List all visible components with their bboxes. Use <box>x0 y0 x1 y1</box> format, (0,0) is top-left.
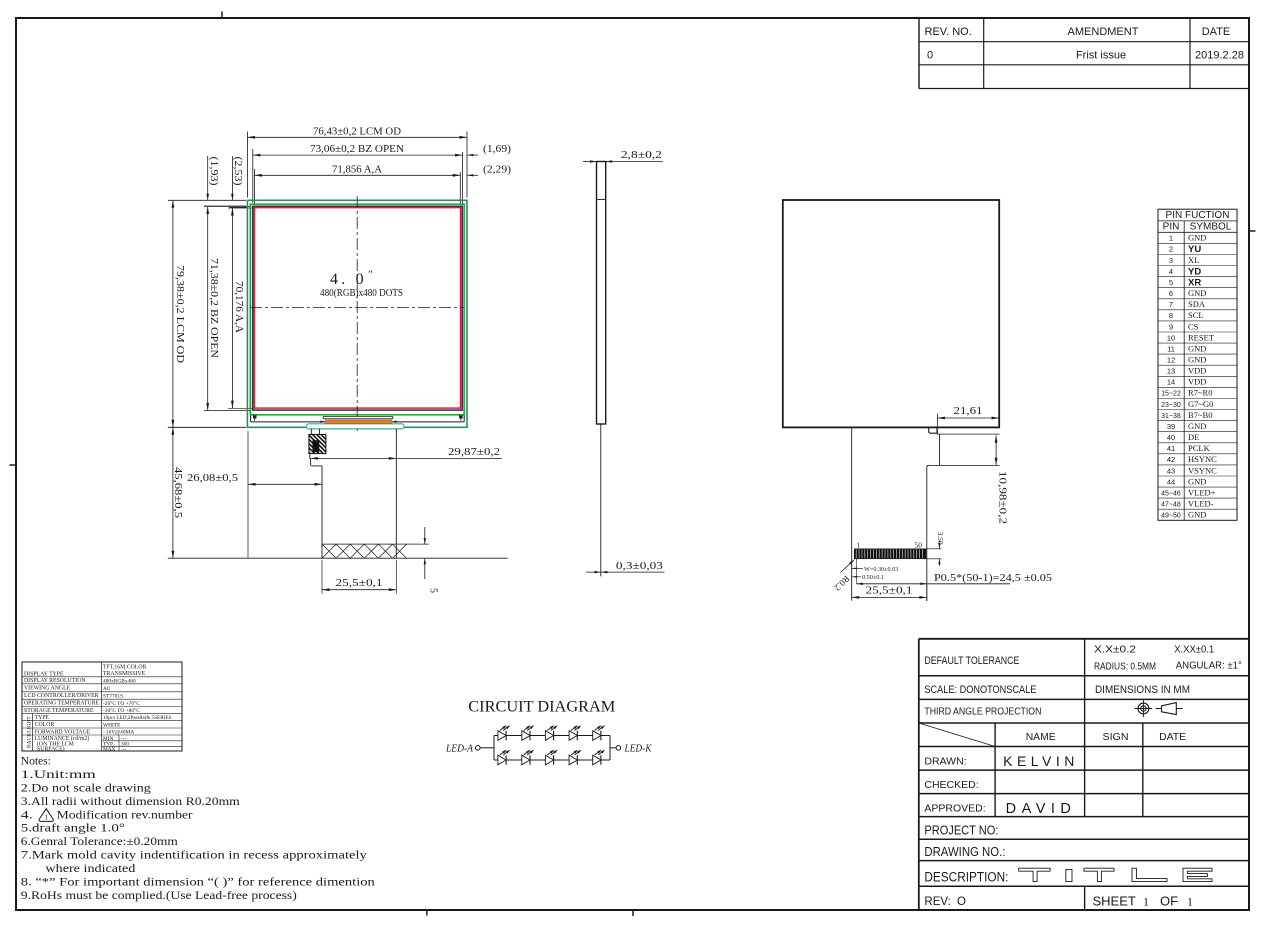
svg-text:P0.5*(50-1)=24,5 ±0.05: P0.5*(50-1)=24,5 ±0.05 <box>934 573 1052 584</box>
svg-text:2.Do not scale drawing: 2.Do not scale drawing <box>21 780 151 794</box>
svg-text:3: 3 <box>1169 256 1173 265</box>
svg-text:7.Mark mold cavity indentifica: 7.Mark mold cavity indentification in re… <box>21 848 367 862</box>
svg-text:10: 10 <box>1167 333 1175 342</box>
svg-text:73,06±0,2 BZ OPEN: 73,06±0,2 BZ OPEN <box>310 143 404 155</box>
svg-text:LED-A: LED-A <box>445 743 473 755</box>
svg-text:1.Unit:mm: 1.Unit:mm <box>21 767 97 781</box>
svg-text:31~38: 31~38 <box>1161 413 1181 420</box>
svg-text:4: 4 <box>1169 267 1173 276</box>
svg-text:4.: 4. <box>21 807 33 821</box>
svg-text:SCALE: DONOTONSCALE: SCALE: DONOTONSCALE <box>924 684 1036 696</box>
svg-text:MAX: MAX <box>103 746 116 752</box>
svg-text:5: 5 <box>428 588 439 593</box>
svg-text:CHECKED:: CHECKED: <box>924 779 978 791</box>
svg-text:VLED+: VLED+ <box>1188 487 1216 497</box>
svg-text:VDD: VDD <box>1188 377 1206 387</box>
svg-text:OPERATING TEMPERATURE: OPERATING TEMPERATURE <box>24 701 100 707</box>
svg-text:10,98±0,2: 10,98±0,2 <box>997 471 1009 524</box>
svg-text:1: 1 <box>1143 894 1149 908</box>
svg-text:COLOR: COLOR <box>35 722 55 728</box>
svg-text:8. “*” For important dimension: 8. “*” For important dimension “( )” for… <box>21 875 375 889</box>
svg-text:THIRD ANGLE PROJECTION: THIRD ANGLE PROJECTION <box>924 706 1041 718</box>
svg-text:DISPLAY RESOLUTION: DISPLAY RESOLUTION <box>24 678 86 684</box>
svg-text:9: 9 <box>1169 322 1173 331</box>
svg-text:DATE: DATE <box>1202 26 1231 38</box>
svg-text:~16V@40MA: ~16V@40MA <box>103 730 134 736</box>
svg-text:3.50: 3.50 <box>936 532 945 545</box>
svg-text:HSYNC: HSYNC <box>1188 454 1217 464</box>
svg-text:Notes:: Notes: <box>21 754 51 768</box>
svg-text:(2,53): (2,53) <box>232 157 244 186</box>
svg-text:0.50±0.1: 0.50±0.1 <box>862 574 884 581</box>
svg-text:ANGULAR: ±1°: ANGULAR: ±1° <box>1176 660 1242 672</box>
svg-text:40: 40 <box>1167 433 1175 442</box>
svg-text:VDD: VDD <box>1188 366 1206 376</box>
svg-text:CIRCUIT DIAGRAM: CIRCUIT DIAGRAM <box>468 699 615 716</box>
svg-text:KELVIN: KELVIN <box>1003 753 1079 769</box>
svg-text:Frist issue: Frist issue <box>1076 50 1126 62</box>
svg-text:(2,29): (2,29) <box>483 163 511 175</box>
svg-text:″: ″ <box>368 267 373 281</box>
svg-text:5.draft angle 1.0°: 5.draft angle 1.0° <box>21 821 125 835</box>
svg-text:13: 13 <box>1167 367 1175 376</box>
svg-text:25,5±0,1: 25,5±0,1 <box>866 585 913 597</box>
svg-text:PCLK: PCLK <box>1188 443 1211 453</box>
svg-text:2019.2.28: 2019.2.28 <box>1195 50 1244 62</box>
svg-text:DESCRIPTION:: DESCRIPTION: <box>924 869 1008 884</box>
svg-text:ST7701S: ST7701S <box>103 694 123 700</box>
svg-text:5: 5 <box>1169 278 1173 287</box>
svg-text:DEFAULT TOLERANCE: DEFAULT TOLERANCE <box>924 655 1019 667</box>
svg-text:APPROVED:: APPROVED: <box>924 803 985 815</box>
svg-text:GND: GND <box>1188 288 1206 298</box>
svg-text:GND: GND <box>1188 510 1206 520</box>
svg-text:W=0.30±0.03: W=0.30±0.03 <box>864 566 898 573</box>
svg-text:0: 0 <box>927 50 933 62</box>
svg-text:BACKLIGHT: BACKLIGHT <box>27 716 33 748</box>
svg-text:RADIUS: 0.5MM: RADIUS: 0.5MM <box>1094 661 1156 673</box>
svg-text:42: 42 <box>1167 455 1175 464</box>
svg-text:STORAGE TEMPERATURE: STORAGE TEMPERATURE <box>24 708 94 714</box>
svg-text:8: 8 <box>1169 311 1173 320</box>
svg-text:DRAWN:: DRAWN: <box>924 756 966 768</box>
svg-text:-30°C TO +80°C: -30°C TO +80°C <box>103 707 140 714</box>
svg-text:44: 44 <box>1167 477 1175 486</box>
svg-text:49~50: 49~50 <box>1161 513 1181 520</box>
svg-text:VLED-: VLED- <box>1188 499 1214 509</box>
svg-text:DIMENSIONS IN MM: DIMENSIONS IN MM <box>1095 684 1190 696</box>
svg-text:PROJECT NO:: PROJECT NO: <box>924 823 998 838</box>
svg-text:SYMBOL: SYMBOL <box>1190 222 1232 233</box>
svg-text:47~48: 47~48 <box>1161 502 1181 509</box>
svg-text:-20°C TO +70°C: -20°C TO +70°C <box>103 700 140 707</box>
svg-text:SCL: SCL <box>1188 310 1204 320</box>
svg-text:25,5±0,1: 25,5±0,1 <box>336 577 383 589</box>
svg-text:XR: XR <box>1188 277 1201 288</box>
svg-text:70,176 A,A: 70,176 A,A <box>233 281 245 333</box>
svg-text:All: All <box>103 686 110 692</box>
svg-text:480(RGB)x480 DOTS: 480(RGB)x480 DOTS <box>320 287 403 299</box>
svg-text:SIGN: SIGN <box>1103 731 1129 743</box>
svg-text:SURFACE): SURFACE) <box>37 745 65 752</box>
svg-text:PIN FUCTION: PIN FUCTION <box>1166 210 1230 221</box>
svg-text:0,3±0,03: 0,3±0,03 <box>616 560 664 572</box>
svg-text:2,8±0,2: 2,8±0,2 <box>621 149 662 161</box>
svg-text:23~30: 23~30 <box>1161 402 1181 409</box>
svg-text:where indicated: where indicated <box>45 861 135 875</box>
svg-text:6: 6 <box>1169 289 1173 298</box>
svg-text:3.All radii without dimension: 3.All radii without dimension R0.20mm <box>21 794 241 808</box>
svg-text:TRANSMISSIVE: TRANSMISSIVE <box>103 671 146 677</box>
svg-text:15~22: 15~22 <box>1161 391 1181 398</box>
svg-text:DISPLAY TYPE: DISPLAY TYPE <box>24 672 64 678</box>
svg-text:GND: GND <box>1188 476 1206 486</box>
svg-text:PIN: PIN <box>1163 222 1180 233</box>
svg-text:39: 39 <box>1167 422 1175 431</box>
svg-text:79,38±0,2 LCM OD: 79,38±0,2 LCM OD <box>174 265 186 363</box>
svg-text:43: 43 <box>1167 466 1175 475</box>
svg-text:OF: OF <box>1160 893 1178 908</box>
svg-text:YD: YD <box>1188 266 1201 277</box>
svg-text:1: 1 <box>857 541 861 550</box>
svg-text:FORWARD VOLTAGE: FORWARD VOLTAGE <box>35 730 91 736</box>
svg-text:YU: YU <box>1188 244 1201 255</box>
svg-text:GND: GND <box>1188 233 1206 243</box>
svg-text:4. 0: 4. 0 <box>330 271 367 288</box>
svg-text:1: 1 <box>1169 234 1173 243</box>
svg-text:12: 12 <box>1167 356 1175 365</box>
svg-text:---: --- <box>121 746 127 752</box>
svg-text:71,856 A,A: 71,856 A,A <box>332 163 382 175</box>
svg-text:DRAWING NO.:: DRAWING NO.: <box>924 844 1005 859</box>
svg-text:45,68±0,5: 45,68±0,5 <box>172 467 184 519</box>
svg-text:AMENDMENT: AMENDMENT <box>1068 26 1139 38</box>
svg-text:1: 1 <box>1187 894 1193 908</box>
svg-text:DAVID: DAVID <box>1006 801 1077 817</box>
svg-text:29,87±0,2: 29,87±0,2 <box>448 446 500 458</box>
svg-text:21,61: 21,61 <box>954 405 983 417</box>
svg-text:GND: GND <box>1188 421 1206 431</box>
svg-text:G7~G0: G7~G0 <box>1188 399 1213 409</box>
svg-text:NAME: NAME <box>1026 731 1056 743</box>
svg-text:SHEET: SHEET <box>1093 893 1136 908</box>
svg-text:6.Genral Tolerance:±0.20mm: 6.Genral Tolerance:±0.20mm <box>21 834 179 848</box>
svg-text:26,08±0,5: 26,08±0,5 <box>187 472 239 484</box>
svg-text:O: O <box>957 896 966 908</box>
svg-text:7: 7 <box>1169 300 1173 309</box>
svg-text:DE: DE <box>1188 432 1199 442</box>
svg-text:R7~R0: R7~R0 <box>1188 388 1212 398</box>
svg-text:76,43±0,2 LCM OD: 76,43±0,2 LCM OD <box>313 125 401 137</box>
svg-text:9.RoHs must be complied.(Use L: 9.RoHs must be complied.(Use Lead-free p… <box>21 888 297 902</box>
svg-text:LCD CONTROLLER/DRIVER: LCD CONTROLLER/DRIVER <box>24 693 99 699</box>
svg-text:2: 2 <box>1169 245 1173 254</box>
svg-text:X.XX±0.1: X.XX±0.1 <box>1174 644 1214 656</box>
svg-text:14: 14 <box>1167 378 1175 387</box>
svg-text:11: 11 <box>1167 344 1175 353</box>
svg-text:50: 50 <box>915 541 923 550</box>
svg-text:480xRGBx480: 480xRGBx480 <box>103 678 136 684</box>
svg-text:(1,69): (1,69) <box>483 143 511 155</box>
svg-text:REV. NO.: REV. NO. <box>925 26 972 38</box>
svg-text:CS: CS <box>1188 321 1199 331</box>
svg-text:TFT,16M COLOR: TFT,16M COLOR <box>103 665 147 671</box>
svg-text:Modification rev.number: Modification rev.number <box>57 807 193 821</box>
svg-text:41: 41 <box>1167 444 1175 453</box>
svg-text:RESET: RESET <box>1188 332 1215 342</box>
svg-text:DATE: DATE <box>1159 731 1186 743</box>
svg-text:REV:: REV: <box>924 896 950 908</box>
svg-text:SDA: SDA <box>1188 299 1206 309</box>
svg-text:VSYNC: VSYNC <box>1188 465 1217 475</box>
svg-text:XL: XL <box>1188 255 1199 265</box>
svg-text:LED-K: LED-K <box>624 743 652 755</box>
svg-text:10pcs LED,2Parallel& 5SERIES: 10pcs LED,2Parallel& 5SERIES <box>103 715 172 721</box>
svg-text:X.X±0.2: X.X±0.2 <box>1094 644 1136 656</box>
svg-text:45~46: 45~46 <box>1161 490 1181 497</box>
svg-text:B7~B0: B7~B0 <box>1188 410 1212 420</box>
svg-text:71,38±0,2 BZ OPEN: 71,38±0,2 BZ OPEN <box>208 258 220 358</box>
svg-text:(1,93): (1,93) <box>208 157 220 186</box>
svg-text:WHITE: WHITE <box>103 722 121 728</box>
svg-text:GND: GND <box>1188 355 1206 365</box>
svg-text:TYPE: TYPE <box>35 715 50 721</box>
svg-text:GND: GND <box>1188 343 1206 353</box>
svg-text:VIEWING ANGLE: VIEWING ANGLE <box>24 686 71 692</box>
